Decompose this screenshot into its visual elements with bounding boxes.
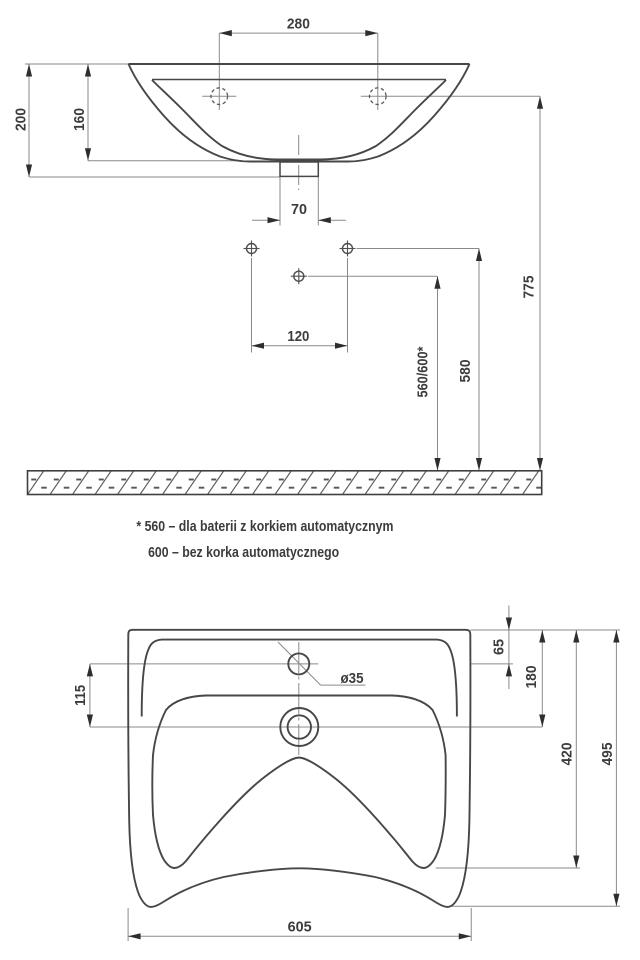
svg-text:160: 160 (71, 108, 88, 131)
svg-text:600 – bez korka automatycznego: 600 – bez korka automatycznego (148, 544, 339, 561)
svg-text:ø35: ø35 (341, 670, 364, 687)
svg-text:560/600*: 560/600* (415, 346, 432, 397)
svg-text:65: 65 (491, 639, 508, 655)
svg-text:775: 775 (521, 276, 538, 299)
svg-text:495: 495 (599, 743, 616, 766)
svg-text:605: 605 (288, 919, 312, 936)
svg-text:280: 280 (287, 16, 310, 33)
svg-text:120: 120 (287, 328, 309, 345)
svg-text:180: 180 (523, 666, 540, 689)
svg-text:* 560 – dla baterii z korkiem: * 560 – dla baterii z korkiem automatycz… (136, 518, 393, 535)
svg-text:115: 115 (72, 685, 89, 706)
svg-text:70: 70 (291, 201, 307, 218)
svg-text:420: 420 (559, 743, 576, 766)
svg-text:200: 200 (13, 108, 30, 131)
svg-text:580: 580 (457, 360, 474, 383)
